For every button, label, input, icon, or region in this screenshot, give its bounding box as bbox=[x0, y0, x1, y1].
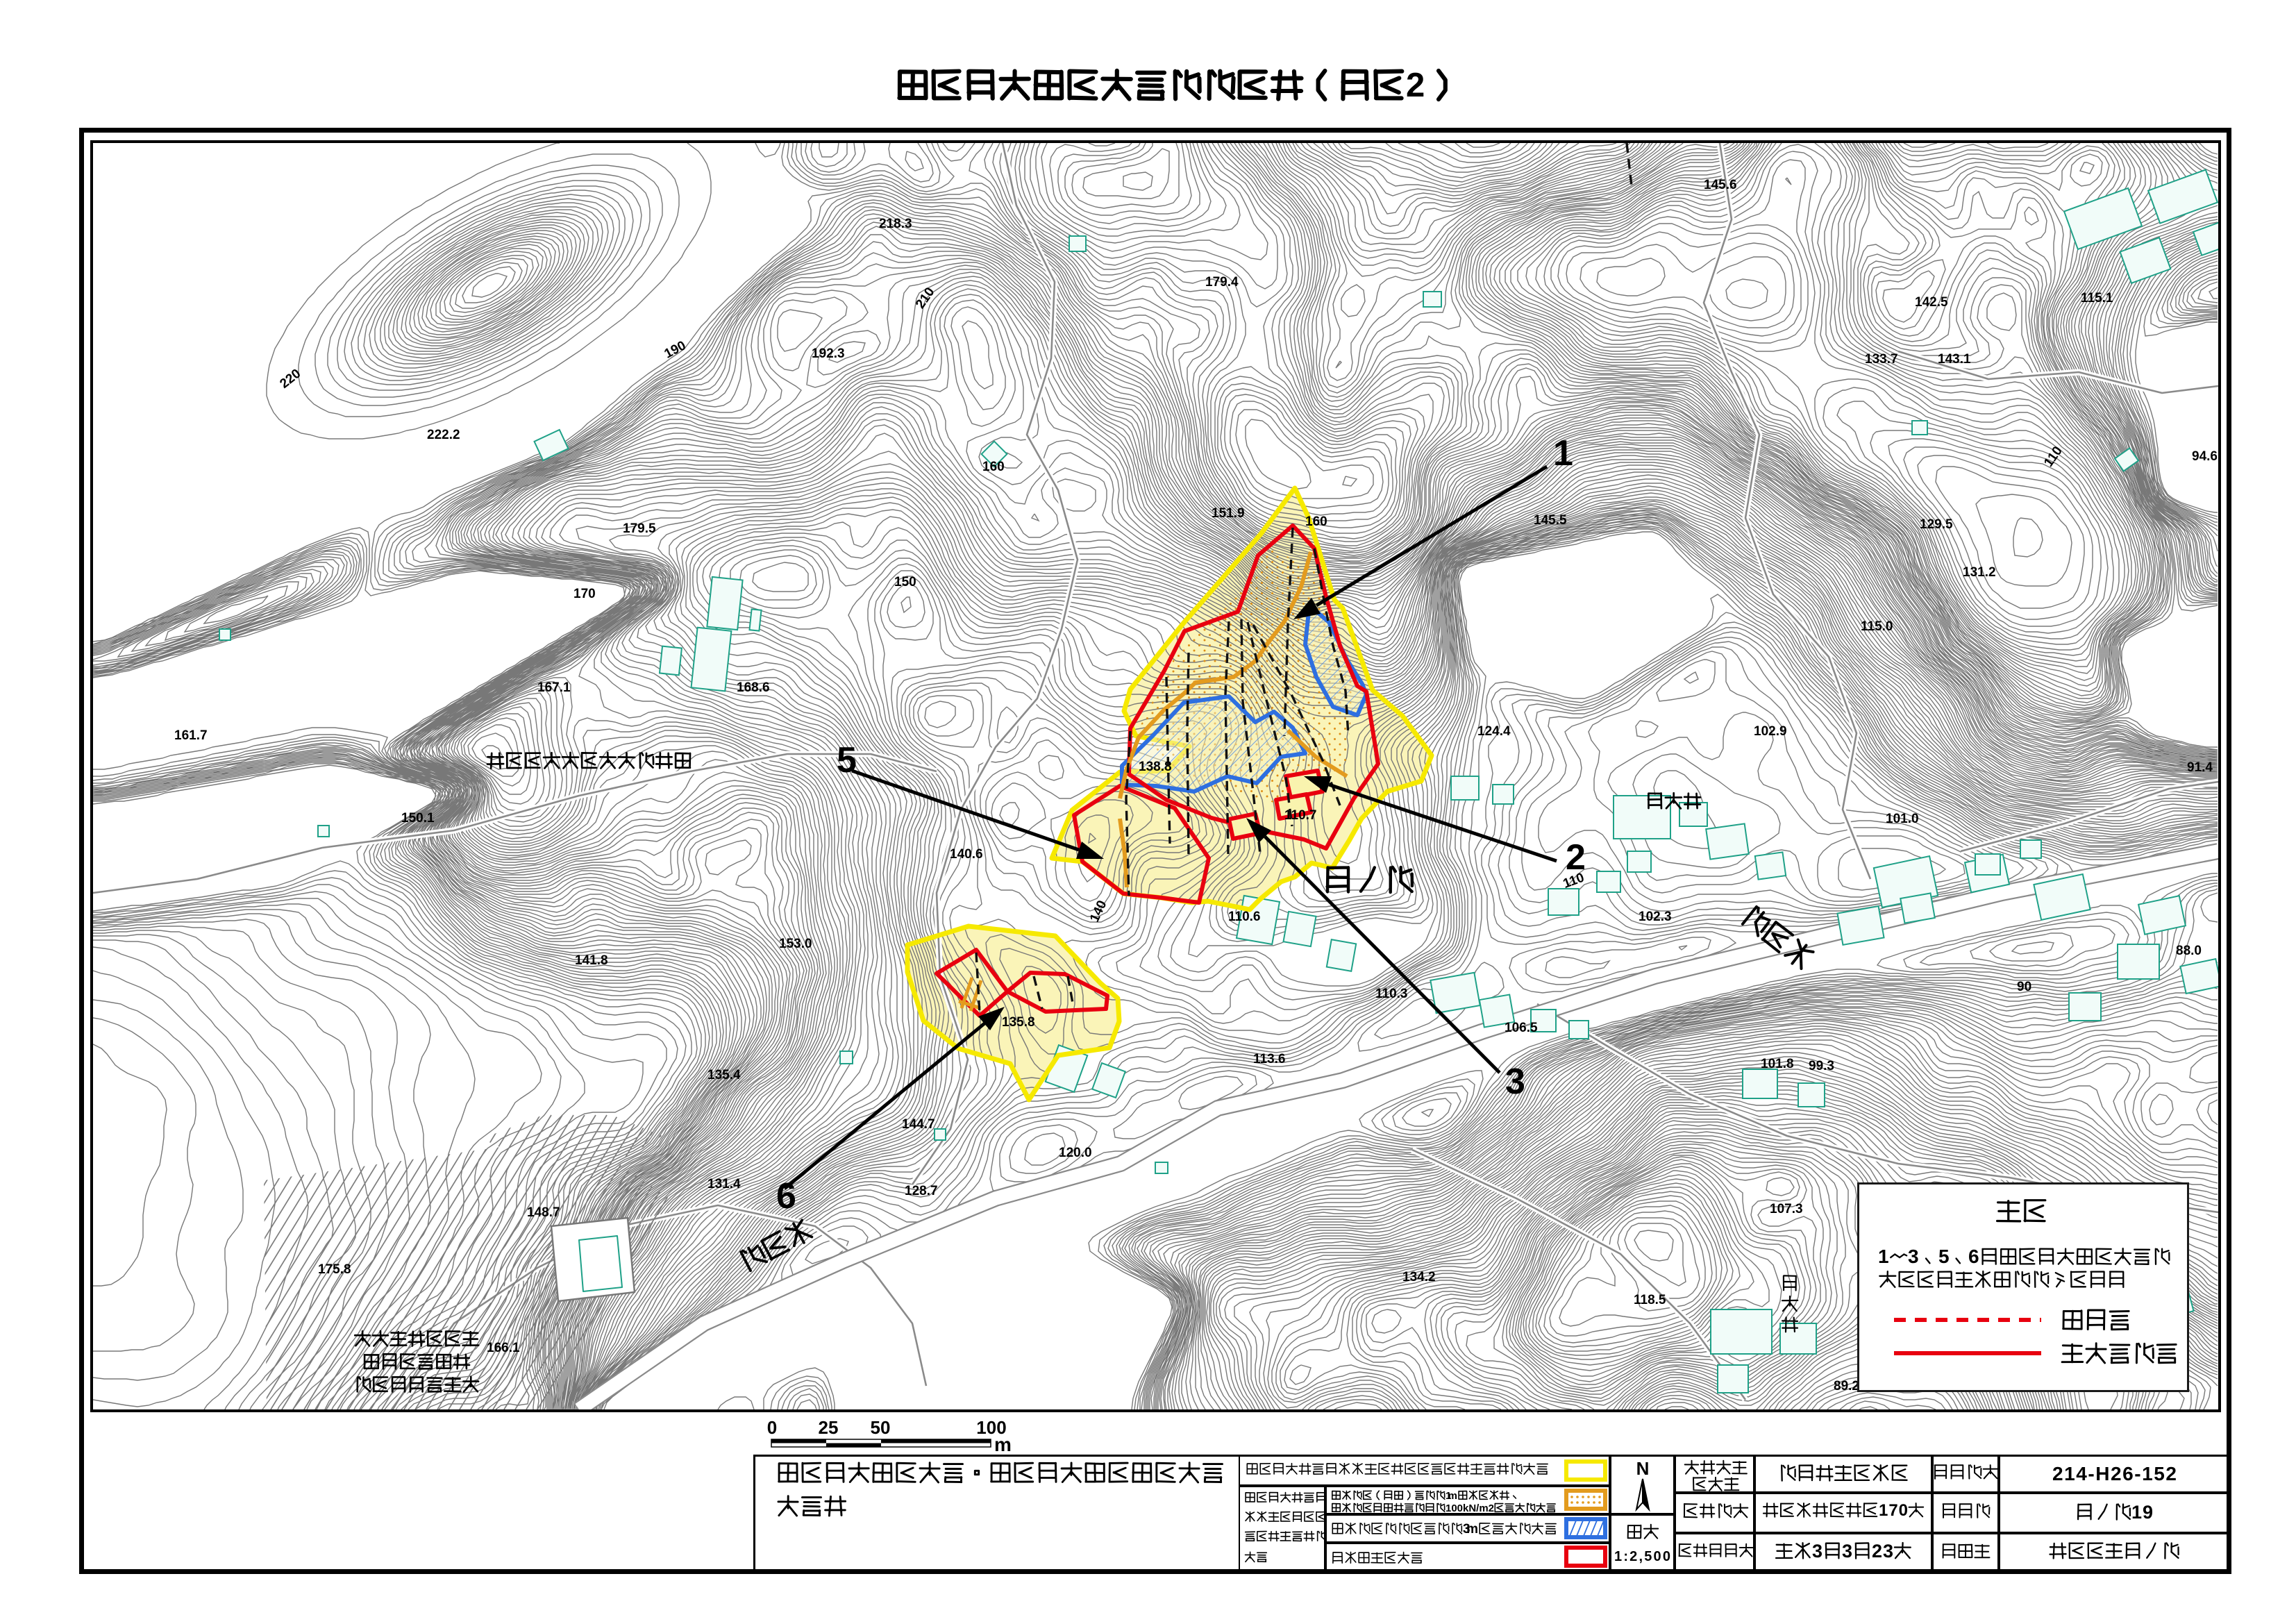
svg-text:222.2: 222.2 bbox=[427, 428, 460, 442]
svg-text:140: 140 bbox=[1087, 898, 1109, 925]
svg-text:150: 150 bbox=[894, 575, 916, 589]
svg-text:134.2: 134.2 bbox=[1402, 1270, 1436, 1284]
svg-text:128.7: 128.7 bbox=[905, 1184, 938, 1198]
svg-text:3: 3 bbox=[1908, 1246, 1919, 1267]
svg-text:0: 0 bbox=[767, 1417, 777, 1438]
svg-text:179.5: 179.5 bbox=[623, 521, 656, 536]
svg-text:6: 6 bbox=[1968, 1246, 1979, 1267]
svg-text:106.5: 106.5 bbox=[1505, 1021, 1538, 1035]
svg-text:1: 1 bbox=[1878, 1246, 1889, 1267]
svg-text:141.8: 141.8 bbox=[575, 953, 608, 968]
svg-text:170: 170 bbox=[573, 587, 596, 601]
svg-text:102.9: 102.9 bbox=[1754, 724, 1787, 739]
svg-text:120.0: 120.0 bbox=[1059, 1146, 1092, 1160]
svg-text:94.6: 94.6 bbox=[2192, 449, 2218, 464]
svg-text:210: 210 bbox=[913, 285, 937, 311]
svg-text:167.1: 167.1 bbox=[537, 680, 571, 695]
svg-text:175.8: 175.8 bbox=[318, 1262, 351, 1277]
svg-text:101.8: 101.8 bbox=[1761, 1057, 1794, 1071]
svg-text:1: 1 bbox=[1553, 433, 1573, 474]
svg-text:1:2,500: 1:2,500 bbox=[1614, 1549, 1670, 1564]
svg-text:142.5: 142.5 bbox=[1915, 295, 1948, 310]
svg-text:220: 220 bbox=[277, 367, 303, 392]
svg-text:135.8: 135.8 bbox=[1002, 1015, 1035, 1030]
svg-text:89.2: 89.2 bbox=[1834, 1379, 1859, 1393]
svg-text:138.8: 138.8 bbox=[1139, 760, 1172, 774]
svg-text:100kN/m2: 100kN/m2 bbox=[1446, 1502, 1494, 1514]
svg-text:145.5: 145.5 bbox=[1534, 513, 1567, 528]
svg-text:99.3: 99.3 bbox=[1809, 1059, 1834, 1073]
svg-text:218.3: 218.3 bbox=[879, 217, 912, 231]
svg-text:102.3: 102.3 bbox=[1639, 910, 1672, 924]
svg-text:160: 160 bbox=[982, 460, 1005, 474]
svg-text:115.1: 115.1 bbox=[2081, 291, 2113, 305]
svg-text:190: 190 bbox=[662, 338, 689, 361]
svg-text:148.7: 148.7 bbox=[527, 1205, 560, 1220]
svg-text:101.0: 101.0 bbox=[1886, 812, 1919, 826]
svg-text:118.5: 118.5 bbox=[1634, 1293, 1666, 1307]
svg-text:23: 23 bbox=[1872, 1541, 1893, 1562]
svg-text:19: 19 bbox=[2131, 1502, 2153, 1523]
svg-text:91.4: 91.4 bbox=[2187, 760, 2213, 775]
svg-text:107.3: 107.3 bbox=[1770, 1202, 1803, 1216]
svg-text:25: 25 bbox=[819, 1417, 839, 1438]
svg-text:131.4: 131.4 bbox=[707, 1177, 741, 1191]
svg-text:3: 3 bbox=[1842, 1541, 1852, 1562]
svg-text:5: 5 bbox=[1938, 1246, 1950, 1267]
svg-text:3m: 3m bbox=[1463, 1522, 1478, 1537]
svg-text:6: 6 bbox=[776, 1176, 796, 1216]
svg-text:110.3: 110.3 bbox=[1375, 987, 1408, 1001]
svg-text:153.0: 153.0 bbox=[779, 937, 812, 951]
svg-text:170: 170 bbox=[1879, 1501, 1908, 1520]
svg-text:143.1: 143.1 bbox=[1938, 352, 1971, 367]
svg-text:m: m bbox=[994, 1434, 1012, 1455]
svg-text:151.9: 151.9 bbox=[1212, 506, 1245, 521]
svg-text:1m: 1m bbox=[1446, 1490, 1457, 1502]
svg-text:50: 50 bbox=[871, 1417, 891, 1438]
svg-text:88.0: 88.0 bbox=[2176, 944, 2202, 958]
svg-text:124.4: 124.4 bbox=[1477, 724, 1511, 739]
svg-text:110: 110 bbox=[2041, 444, 2065, 469]
svg-text:90: 90 bbox=[2017, 980, 2031, 994]
svg-text:3: 3 bbox=[1505, 1062, 1525, 1102]
svg-text:168.6: 168.6 bbox=[737, 680, 770, 695]
svg-text:144.7: 144.7 bbox=[902, 1117, 935, 1132]
svg-text:214-H26-152: 214-H26-152 bbox=[2052, 1463, 2177, 1484]
svg-text:2: 2 bbox=[1566, 837, 1586, 878]
svg-text:133.7: 133.7 bbox=[1865, 352, 1898, 367]
svg-text:166.1: 166.1 bbox=[487, 1341, 520, 1355]
svg-text:129.5: 129.5 bbox=[1920, 517, 1953, 532]
svg-text:N: N bbox=[1636, 1458, 1650, 1479]
svg-text:179.4: 179.4 bbox=[1205, 275, 1239, 290]
svg-text:192.3: 192.3 bbox=[812, 346, 845, 361]
svg-text:161.7: 161.7 bbox=[174, 728, 208, 743]
svg-text:131.2: 131.2 bbox=[1963, 565, 1996, 580]
svg-text:3: 3 bbox=[1812, 1541, 1822, 1562]
svg-text:110.7: 110.7 bbox=[1284, 808, 1317, 823]
svg-text:160: 160 bbox=[1305, 514, 1327, 529]
svg-text:145.6: 145.6 bbox=[1704, 178, 1737, 192]
svg-text:115.0: 115.0 bbox=[1861, 619, 1893, 634]
svg-text:140.6: 140.6 bbox=[950, 847, 983, 862]
svg-text:110.6: 110.6 bbox=[1228, 910, 1261, 924]
svg-text:150.1: 150.1 bbox=[401, 811, 435, 826]
svg-text:5: 5 bbox=[837, 740, 857, 780]
svg-text:2: 2 bbox=[1406, 67, 1425, 104]
svg-text:113.6: 113.6 bbox=[1253, 1052, 1286, 1066]
svg-text:135.4: 135.4 bbox=[707, 1068, 741, 1082]
